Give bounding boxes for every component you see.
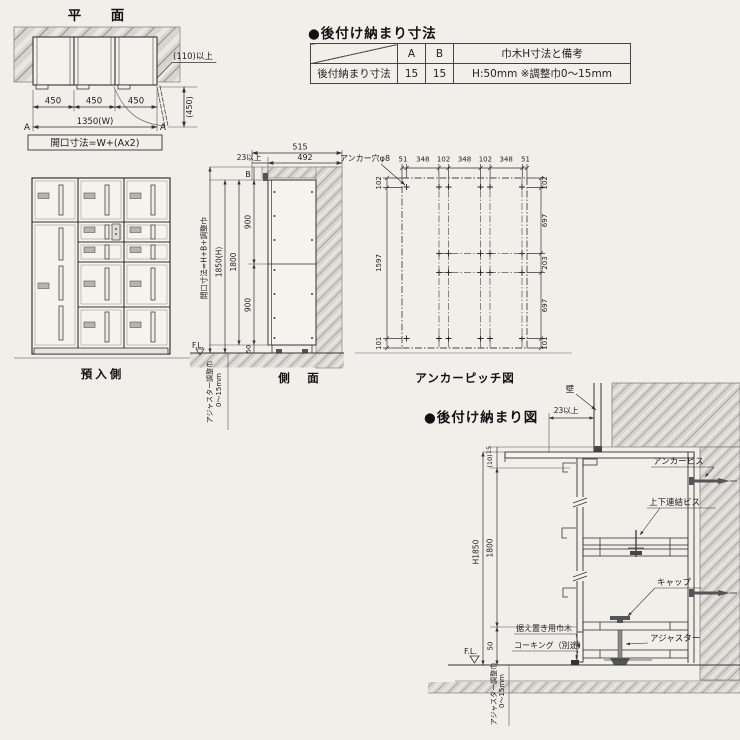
detail-floor-hatch bbox=[428, 682, 740, 693]
anchor-left-dim-2: 101 bbox=[375, 337, 383, 350]
side-adjuster-foot bbox=[302, 349, 308, 353]
detail-front-wall bbox=[594, 383, 601, 452]
side-dim-1850: 1850(H) bbox=[215, 247, 224, 278]
detail-dim-h1850: H1850 bbox=[472, 539, 481, 564]
anchor-right-dim-0: 102 bbox=[541, 176, 549, 189]
anchor-top-dim-6: 51 bbox=[521, 156, 530, 164]
detail-adjuster-note-line2: 0〜15mm bbox=[498, 674, 506, 708]
anchor-top-dim-5: 348 bbox=[500, 156, 513, 164]
anchor-centerlines bbox=[439, 178, 527, 348]
detail-dim-15: 15 bbox=[485, 446, 493, 454]
detail-gap-dim: 23以上 bbox=[554, 406, 579, 415]
anchor-top-dim-0: 51 bbox=[399, 156, 408, 164]
detail-cap-leader bbox=[628, 588, 655, 616]
anchor-hole-leader bbox=[381, 164, 405, 185]
anchor-left-dim-1: 1597 bbox=[375, 254, 383, 272]
elevation-kickplate bbox=[34, 348, 168, 354]
detail-fl-label: F.L. bbox=[464, 647, 477, 656]
side-dim-50: 50 bbox=[245, 345, 253, 353]
detail-wall-label: 壁 bbox=[566, 384, 575, 395]
side-opening-formula: 開口寸法=H+B+調整巾 bbox=[199, 217, 209, 299]
plan-dim-total-width: 1350(W) bbox=[77, 117, 114, 127]
side-dim-900-upper: 900 bbox=[244, 215, 253, 230]
detail-door-break-marks bbox=[573, 497, 587, 581]
anchor-left-dim-ticks bbox=[383, 176, 402, 350]
drawing-canvas: 450 450 450 1350(W) A A 開口寸法=W+(Ax2) (11… bbox=[0, 0, 740, 740]
plan-dim-450-2: 450 bbox=[86, 97, 102, 107]
detail-joint-bolt bbox=[628, 530, 644, 557]
plan-view: 450 450 450 1350(W) A A 開口寸法=W+(Ax2) (11… bbox=[14, 27, 216, 150]
anchor-outline bbox=[402, 178, 527, 348]
detail-adjuster-note-line1: アジャスター調整巾 bbox=[489, 663, 498, 725]
plan-hinge-marks bbox=[36, 85, 130, 89]
detail-dim-10: (10) bbox=[486, 454, 494, 467]
elevation-view bbox=[14, 178, 200, 358]
side-adjuster-foot bbox=[276, 349, 282, 353]
side-dim-515: 515 bbox=[292, 143, 307, 152]
plan-dim-450-3: 450 bbox=[128, 97, 144, 107]
detail-wall-top-hatch bbox=[612, 383, 740, 447]
anchor-hole-marks bbox=[404, 184, 526, 342]
detail-caulk-bead bbox=[571, 660, 579, 665]
side-adjuster-note-line2: 0〜15mm bbox=[215, 373, 223, 407]
side-cabinet-body bbox=[268, 180, 316, 345]
detail-adjuster-label: アジャスター bbox=[650, 634, 700, 644]
detail-dim-50: 50 bbox=[487, 642, 495, 651]
detail-view: 壁 23以上 bbox=[428, 383, 740, 726]
anchor-left-dim-0: 102 bbox=[375, 176, 383, 189]
plan-locker-box bbox=[33, 37, 74, 85]
anchor-top-dim-2: 102 bbox=[437, 156, 450, 164]
anchor-top-dim-1: 348 bbox=[416, 156, 429, 164]
anchor-right-dim-1: 697 bbox=[541, 214, 549, 227]
elevation-cabinet-body bbox=[32, 178, 170, 354]
side-dim-900-lower: 900 bbox=[244, 298, 253, 313]
detail-anchor-screw-label: アンカービス bbox=[653, 457, 704, 467]
anchor-hole-label: アンカー穴φ8 bbox=[340, 153, 390, 163]
detail-adjuster-leader bbox=[626, 643, 648, 644]
detail-dim-1800: 1800 bbox=[486, 538, 495, 557]
plan-section-mark-a-left: A bbox=[24, 123, 31, 133]
anchor-right-dim-2: 203 bbox=[541, 256, 549, 269]
plan-opening-formula: 開口寸法=W+(Ax2) bbox=[51, 137, 140, 149]
plan-door-swing-arc bbox=[114, 87, 165, 126]
plan-locker-box bbox=[115, 37, 157, 85]
detail-fl-level-mark bbox=[470, 656, 479, 663]
detail-join-screw-leader bbox=[640, 508, 660, 535]
plan-clearance-note: (110)以上 bbox=[173, 52, 213, 62]
detail-cap-label: キャップ bbox=[657, 578, 692, 588]
detail-base-label: 据え置き用巾木 bbox=[516, 623, 572, 633]
side-dim-b: B bbox=[245, 170, 251, 179]
detail-caulk-label: コーキング（別途） bbox=[514, 640, 586, 650]
anchor-top-dim-4: 102 bbox=[479, 156, 492, 164]
detail-cabinet-front bbox=[577, 458, 583, 632]
anchor-pitch-view: アンカー穴φ8 51 348 102 348 102 348 bbox=[340, 153, 572, 353]
side-dim-492: 492 bbox=[297, 153, 312, 162]
side-view: F.L. 515 492 23以上 B 900 900 50 1800 bbox=[190, 143, 344, 431]
detail-top-frame-bracket bbox=[583, 459, 597, 465]
side-adjuster-note-line1: アジャスター調整巾 bbox=[205, 361, 214, 423]
detail-adjuster-bolt bbox=[604, 630, 652, 665]
plan-section-mark-a-right: A bbox=[160, 123, 167, 133]
elevation-keypad bbox=[112, 224, 120, 240]
technical-drawing-page: { "plan": { "title": "平 面", "dims": ["45… bbox=[0, 0, 740, 740]
anchor-right-dim-3: 697 bbox=[541, 299, 549, 312]
plan-depth-dim: (450) bbox=[185, 96, 194, 118]
anchor-right-dim-4: 101 bbox=[541, 337, 549, 350]
side-wall-back-hatch bbox=[316, 167, 342, 368]
detail-ext-lines bbox=[483, 447, 612, 627]
detail-join-screw-label: 上下連結ビス bbox=[649, 497, 700, 508]
side-dim-1800: 1800 bbox=[229, 252, 238, 271]
plan-dim-450-1: 450 bbox=[45, 97, 61, 107]
plan-locker-box bbox=[74, 37, 115, 85]
detail-wall-leader bbox=[576, 394, 596, 410]
side-dim-gap: 23以上 bbox=[237, 153, 262, 162]
anchor-top-dim-ticks bbox=[400, 164, 529, 178]
anchor-top-dim-3: 348 bbox=[458, 156, 471, 164]
